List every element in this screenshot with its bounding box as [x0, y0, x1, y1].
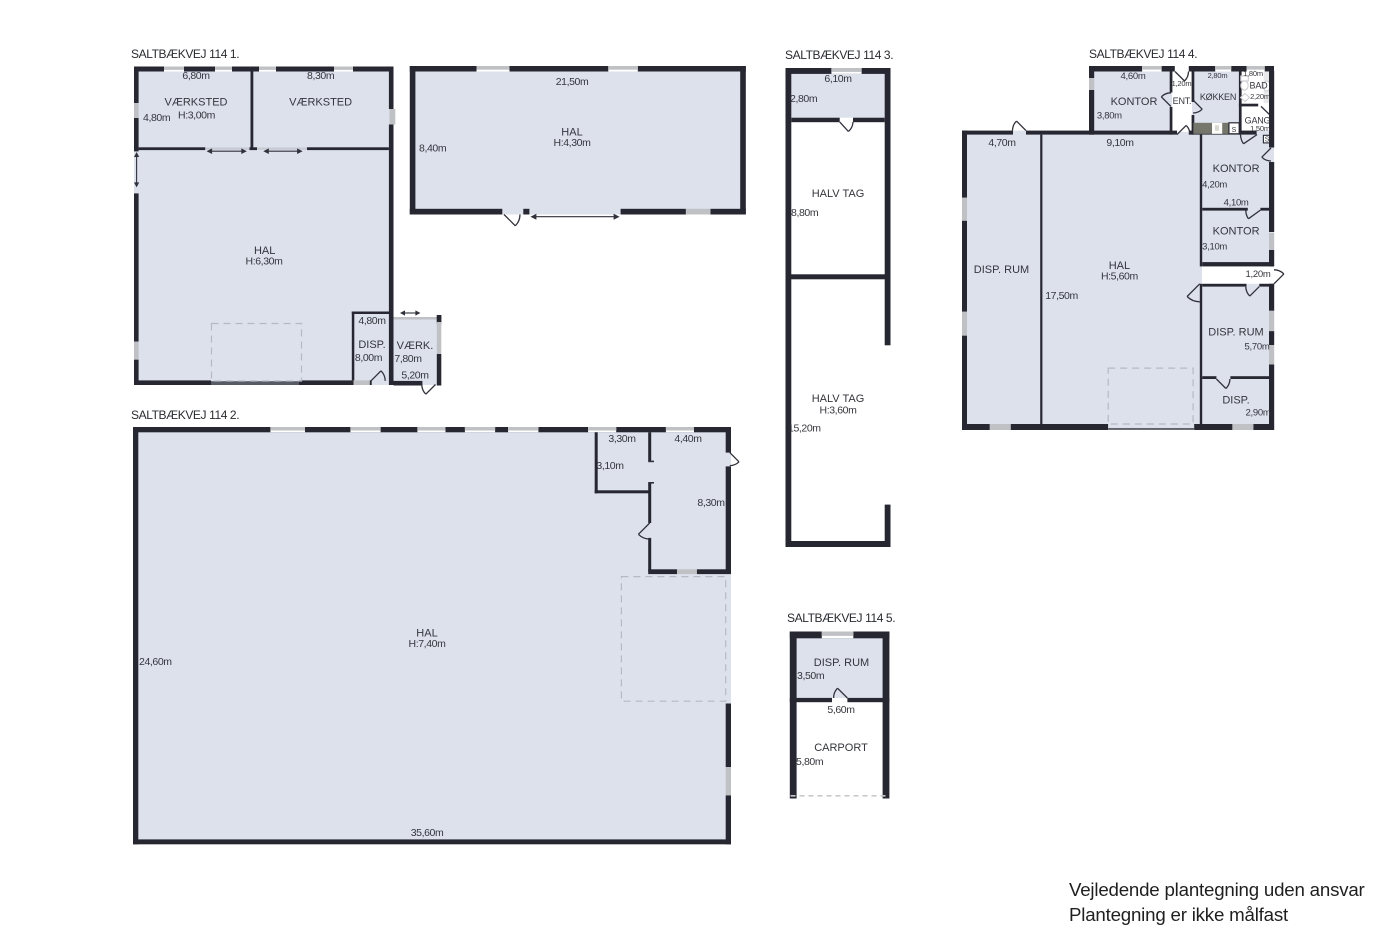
svg-text:SALTBÆKVEJ 114 1.: SALTBÆKVEJ 114 1.	[131, 47, 239, 61]
svg-text:6,80m: 6,80m	[182, 70, 210, 82]
svg-text:SALTBÆKVEJ 114 3.: SALTBÆKVEJ 114 3.	[785, 48, 893, 62]
svg-text:DISP.: DISP.	[1222, 395, 1249, 407]
svg-text:SALTBÆKVEJ 114 5.: SALTBÆKVEJ 114 5.	[787, 611, 895, 625]
svg-text:4,70m: 4,70m	[988, 137, 1016, 149]
svg-text:VÆRK.: VÆRK.	[397, 340, 434, 352]
svg-text:1,20m: 1,20m	[1246, 269, 1271, 280]
svg-text:H:7,40m: H:7,40m	[409, 638, 447, 650]
svg-text:8,40m: 8,40m	[419, 143, 447, 155]
svg-text:3,80m: 3,80m	[1097, 111, 1122, 122]
svg-text:KONTOR: KONTOR	[1213, 163, 1260, 175]
svg-text:9,10m: 9,10m	[1106, 137, 1134, 149]
svg-text:8,30m: 8,30m	[307, 70, 335, 82]
svg-text:S: S	[1232, 127, 1237, 134]
svg-text:HALV TAG: HALV TAG	[812, 393, 865, 405]
svg-text:3,50m: 3,50m	[797, 670, 825, 682]
svg-text:DISP. RUM: DISP. RUM	[974, 264, 1029, 276]
svg-text:5,20m: 5,20m	[401, 370, 429, 382]
svg-text:8,80m: 8,80m	[791, 207, 819, 219]
svg-text:H:3,60m: H:3,60m	[820, 405, 858, 417]
svg-text:Vejledende plantegning uden an: Vejledende plantegning uden ansvar	[1069, 879, 1365, 900]
svg-text:8,00m: 8,00m	[355, 352, 383, 364]
svg-text:4,60m: 4,60m	[1121, 71, 1146, 82]
svg-text:5,80m: 5,80m	[796, 756, 824, 768]
svg-text:4,40m: 4,40m	[674, 433, 702, 445]
svg-text:4,80m: 4,80m	[358, 315, 386, 327]
svg-text:2,80m: 2,80m	[790, 93, 818, 105]
svg-text:5,60m: 5,60m	[827, 704, 855, 716]
svg-text:24,60m: 24,60m	[139, 656, 172, 668]
svg-text:KØKKEN: KØKKEN	[1200, 92, 1236, 102]
svg-text:3,10m: 3,10m	[596, 460, 624, 472]
svg-text:DISP.: DISP.	[358, 339, 385, 351]
svg-text:6,10m: 6,10m	[824, 73, 852, 85]
svg-text:KONTOR: KONTOR	[1111, 96, 1158, 108]
svg-text:H:4,30m: H:4,30m	[554, 137, 592, 149]
svg-text:5,70m: 5,70m	[1245, 342, 1270, 353]
svg-text:3,30m: 3,30m	[608, 433, 636, 445]
svg-text:H:6,30m: H:6,30m	[246, 255, 284, 267]
svg-text:4,80m: 4,80m	[143, 112, 171, 124]
svg-text:VÆRKSTED: VÆRKSTED	[289, 96, 352, 108]
svg-text:CARPORT: CARPORT	[814, 742, 868, 754]
svg-text:1,50m: 1,50m	[1250, 124, 1270, 133]
svg-text:Plantegning er ikke målfast: Plantegning er ikke målfast	[1069, 904, 1289, 925]
svg-text:DISP. RUM: DISP. RUM	[1208, 327, 1263, 339]
svg-text:2,80m: 2,80m	[1208, 71, 1228, 80]
svg-text:H:3,00m: H:3,00m	[178, 110, 216, 122]
svg-text:2,20m: 2,20m	[1250, 92, 1270, 101]
svg-text:1,20m: 1,20m	[1172, 79, 1192, 88]
svg-text:4,10m: 4,10m	[1224, 198, 1249, 209]
svg-text:BAD: BAD	[1250, 81, 1269, 91]
svg-text:4,20m: 4,20m	[1202, 180, 1227, 191]
svg-text:2,90m: 2,90m	[1246, 408, 1271, 419]
svg-text:VÆRKSTED: VÆRKSTED	[165, 96, 228, 108]
svg-text:H:5,60m: H:5,60m	[1101, 271, 1139, 283]
svg-text:DISP. RUM: DISP. RUM	[814, 657, 869, 669]
svg-text:35,60m: 35,60m	[411, 827, 444, 839]
svg-text:SALTBÆKVEJ 114 2.: SALTBÆKVEJ 114 2.	[131, 408, 239, 422]
svg-text:3,10m: 3,10m	[1202, 242, 1227, 253]
svg-text:17,50m: 17,50m	[1045, 290, 1078, 302]
svg-text:15,20m: 15,20m	[788, 423, 821, 435]
svg-text:8,30m: 8,30m	[697, 497, 725, 509]
svg-text:ENT.: ENT.	[1173, 96, 1192, 106]
svg-text:SALTBÆKVEJ 114 4.: SALTBÆKVEJ 114 4.	[1089, 47, 1197, 61]
svg-text:21,50m: 21,50m	[556, 76, 589, 88]
svg-text:KONTOR: KONTOR	[1213, 226, 1260, 238]
svg-text:HALV TAG: HALV TAG	[812, 188, 865, 200]
svg-text:7,80m: 7,80m	[394, 353, 422, 365]
svg-text:1,80m: 1,80m	[1243, 69, 1263, 78]
